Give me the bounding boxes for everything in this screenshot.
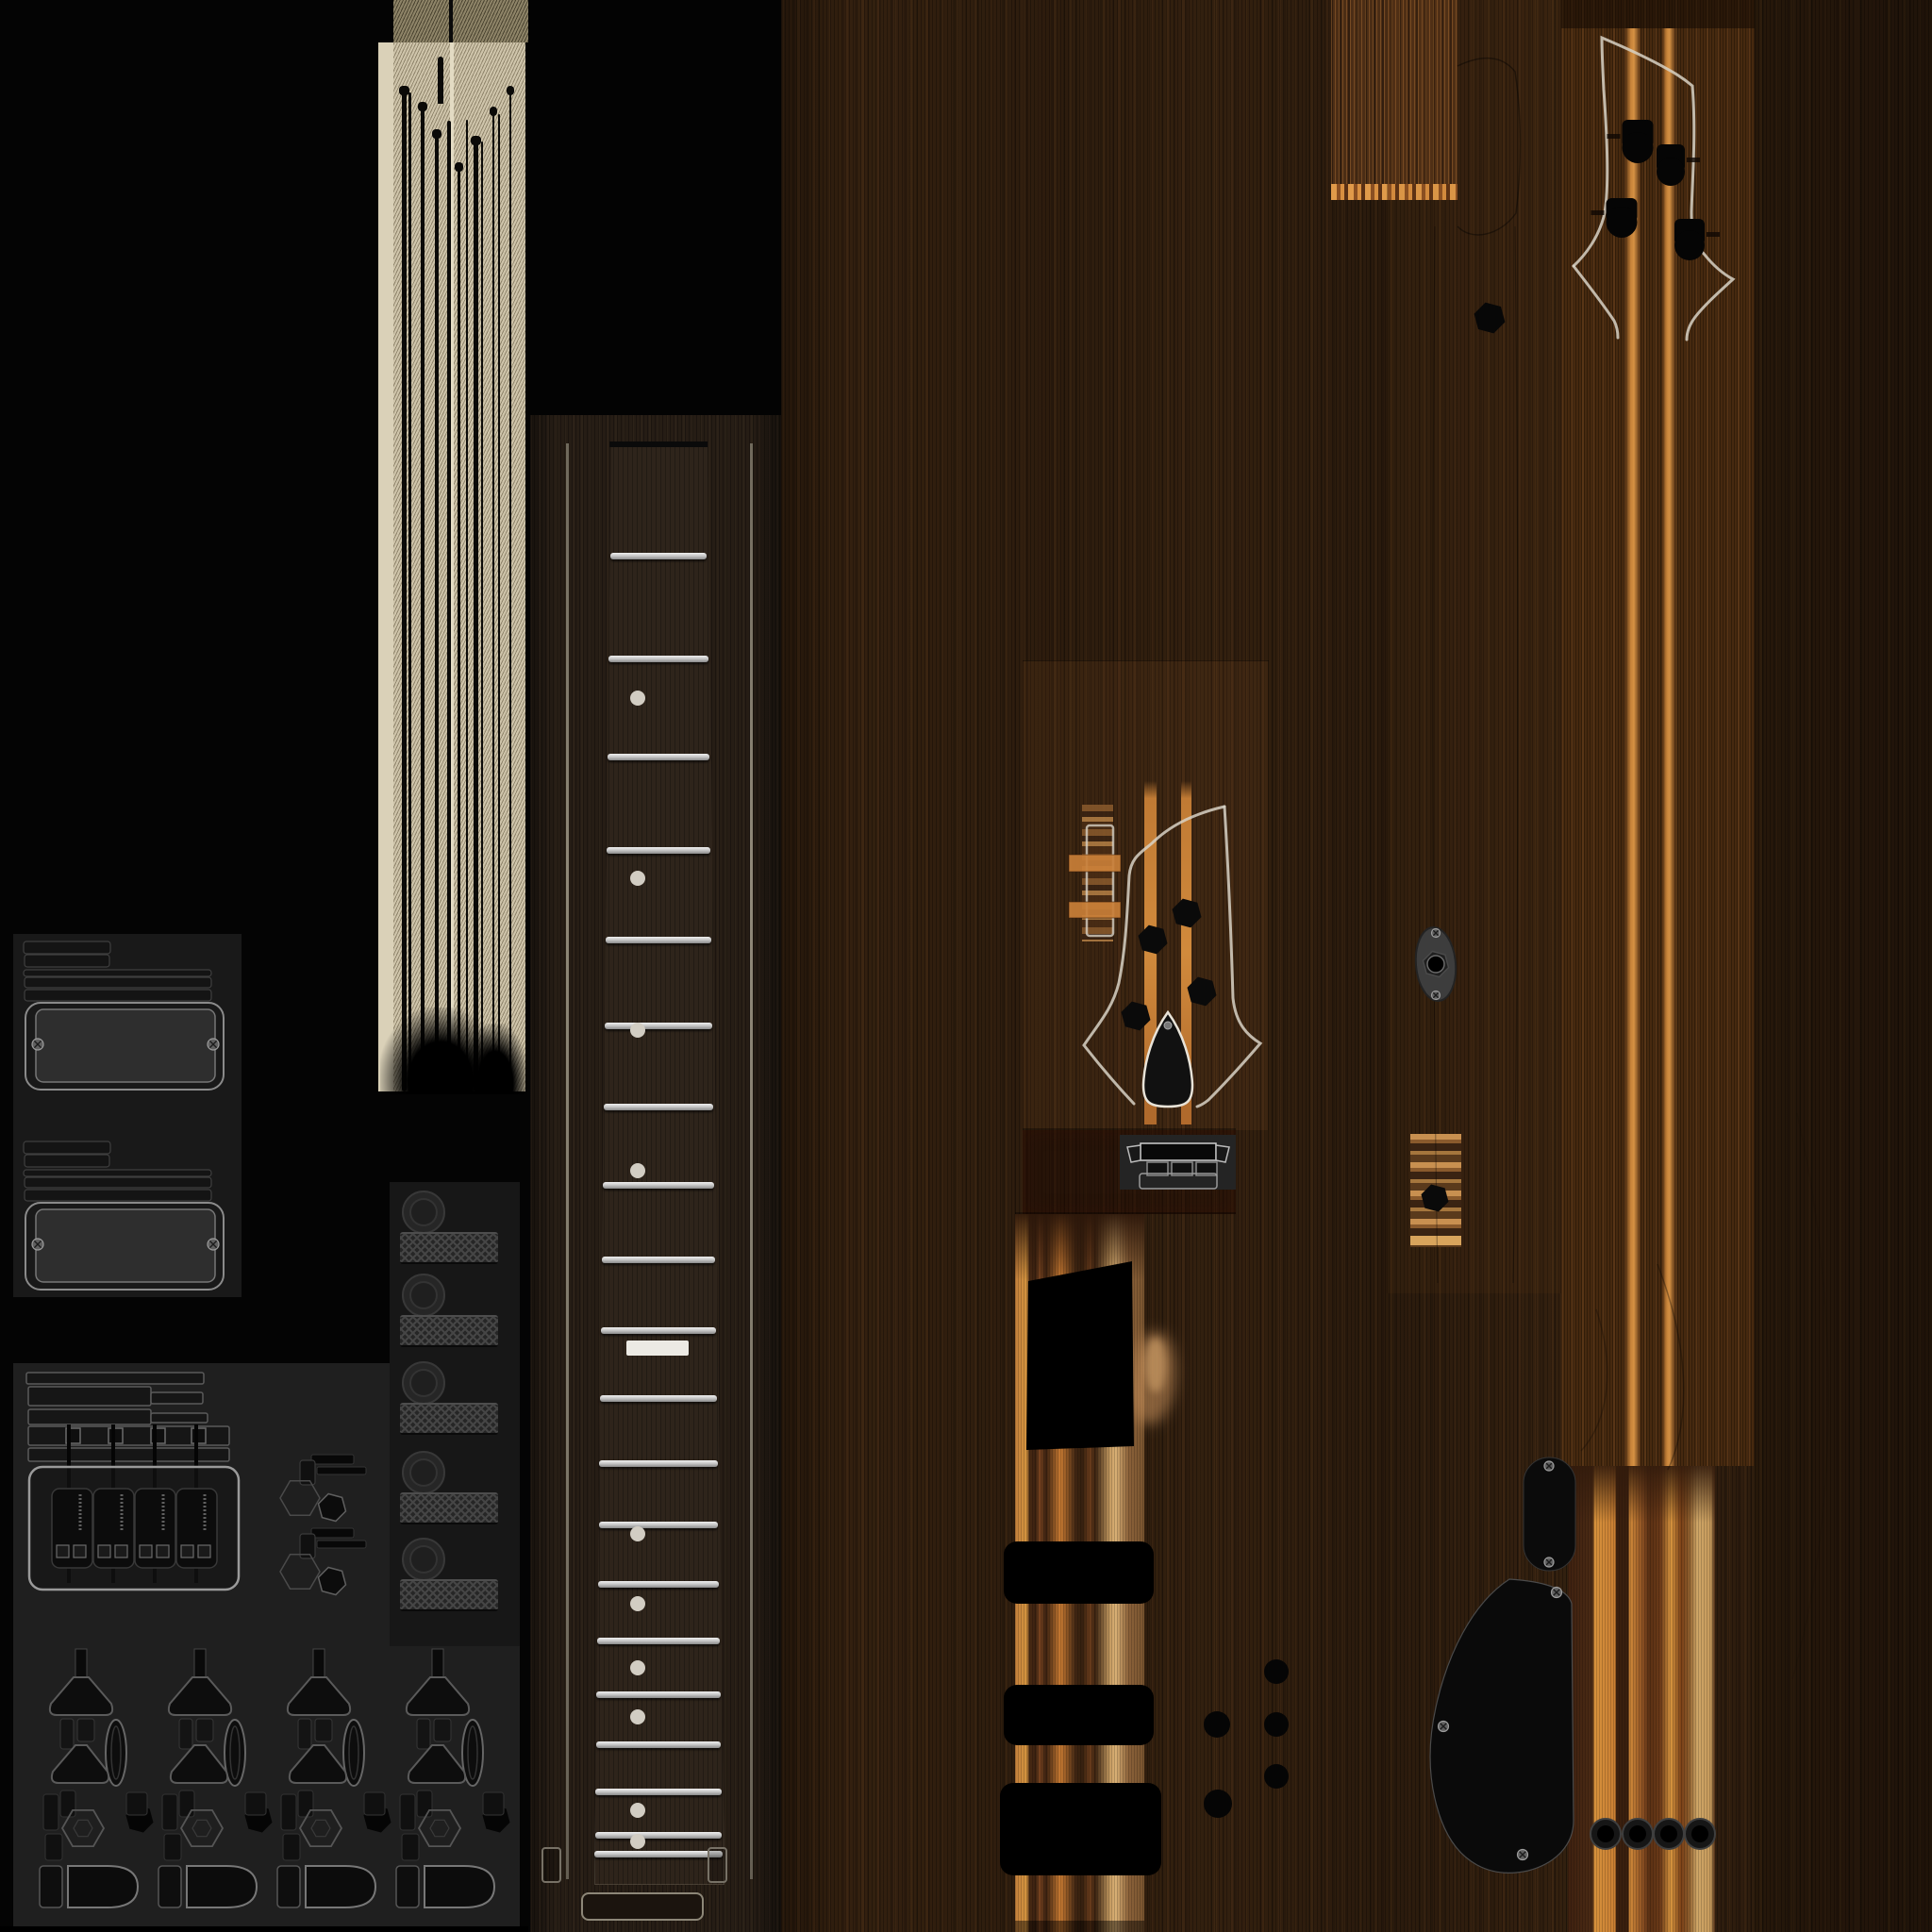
pickup-cover-0 <box>36 1009 215 1082</box>
tuner-0-housing-rect <box>40 1866 62 1907</box>
saddle-screw-b-2 <box>157 1545 169 1557</box>
string-retainer-bar-0 <box>1069 855 1121 872</box>
pickup-bar-0-3 <box>25 977 211 988</box>
jack-hole <box>1427 956 1444 973</box>
pickup-bar-1-4 <box>25 1190 211 1201</box>
tuner-0-post-a <box>60 1719 74 1749</box>
pickup-bar-0-1 <box>25 955 109 967</box>
bottom-black-strip <box>0 1926 528 1932</box>
string-ferrule-hole-3 <box>1691 1825 1708 1842</box>
string-ferrule-hole-2 <box>1660 1825 1677 1842</box>
tuner-2-housing-d <box>306 1866 375 1907</box>
tuner-0-gear-rect-d <box>126 1792 147 1815</box>
bridge-bar-3 <box>28 1409 151 1424</box>
tuner-1-stem <box>194 1649 206 1677</box>
tuner-0-stem <box>75 1649 87 1677</box>
tuner-1-gear-rect-c <box>164 1834 181 1860</box>
string-post-hex-2 <box>1188 977 1217 1007</box>
tuner-2-gear-rect-b <box>298 1790 313 1817</box>
tuner-0-gear-rect-c <box>45 1834 62 1860</box>
tuner-2-post-b <box>315 1719 332 1741</box>
tuner-2-gear-rect-d <box>364 1792 385 1815</box>
tuner-hole-round-1 <box>1657 158 1685 186</box>
wire-hole-2 <box>1264 1712 1289 1737</box>
tuner-3-button-lower <box>408 1745 465 1783</box>
cluster-bar-a-0 <box>311 1455 354 1464</box>
tuner-hole-round-0 <box>1623 132 1654 163</box>
tuner-3-post-a <box>417 1719 430 1749</box>
pickup-bar-0-4 <box>25 990 211 1001</box>
body-edge-curve-2 <box>1792 1113 1828 1679</box>
bridge-bar-1 <box>28 1387 151 1406</box>
tuner-3-housing-d <box>425 1866 494 1907</box>
tuner-3-gear-rect-b <box>417 1790 432 1817</box>
tuner-0-button-front <box>50 1677 112 1715</box>
pickup-bar-1-2 <box>24 1170 211 1176</box>
bridge-bar-0 <box>26 1373 204 1384</box>
body-edge-curve-1 <box>1581 1309 1607 1451</box>
tuner-2-hex-nut-inner <box>311 1820 330 1836</box>
tuner-1-gear-rect-d <box>245 1792 266 1815</box>
neck-taper-line-1 <box>1513 226 1518 1283</box>
headstock-back-outline-1 <box>1574 266 1618 338</box>
headstock-front-outline-1 <box>1197 807 1260 1107</box>
texture-atlas-canvas <box>0 0 1932 1932</box>
tuner-3-gear-rect-d <box>483 1792 504 1815</box>
bridge-bar-2 <box>151 1392 203 1404</box>
tuner-3-stem <box>432 1649 443 1677</box>
tuner-2-housing-rect <box>277 1866 300 1907</box>
saddle-screw-b-3 <box>198 1545 210 1557</box>
string-ferrule-hole-1 <box>1629 1825 1646 1842</box>
body-edge-curve-0 <box>1657 1264 1684 1470</box>
neck-taper-line-0 <box>1433 226 1438 1283</box>
tuner-0-gear-rect-a <box>43 1794 58 1830</box>
headstock-back-outline-0 <box>1574 38 1733 340</box>
tuner-1-button-lower <box>171 1745 227 1783</box>
nut-block-outline <box>1087 825 1113 936</box>
saddle-screw-a-1 <box>98 1545 110 1557</box>
cluster-hex-nut-1 <box>319 1568 346 1595</box>
pickup-cover-1 <box>36 1209 215 1282</box>
tuner-3-housing-rect <box>396 1866 419 1907</box>
tuner-3-button-front <box>407 1677 469 1715</box>
pickup-route-1 <box>1004 1685 1154 1745</box>
wire-hole-1 <box>1204 1711 1230 1738</box>
cluster-bar-b-1 <box>317 1541 366 1548</box>
pickup-route-0 <box>1004 1541 1154 1604</box>
saddle-screw-a-0 <box>57 1545 69 1557</box>
tuner-1-housing-rect <box>158 1866 181 1907</box>
tuner-2-post-a <box>298 1719 311 1749</box>
saddle-screw-b-0 <box>74 1545 86 1557</box>
tuner-2-button-lower <box>290 1745 346 1783</box>
tuner-hole-shadow-0 <box>1607 134 1621 139</box>
pickup-bar-1-1 <box>25 1155 109 1167</box>
tuner-hole-round-3 <box>1674 230 1705 260</box>
tuner-2-button-front <box>288 1677 350 1715</box>
tuner-hole-shadow-2 <box>1591 210 1605 215</box>
wire-hole-3 <box>1264 1764 1289 1789</box>
tuner-0-post-b <box>77 1719 94 1741</box>
tuner-0-gear-rect-b <box>60 1790 75 1817</box>
tuner-1-button-front <box>169 1677 231 1715</box>
vector-overlay <box>0 0 1932 1932</box>
cluster-bar-b-0 <box>317 1467 366 1474</box>
cluster-hex-outline-1 <box>280 1555 320 1589</box>
cluster-bar-a-1 <box>311 1528 354 1538</box>
tuner-0-button-lower <box>52 1745 108 1783</box>
tuner-hole-round-2 <box>1607 207 1638 238</box>
neck-bolt-hex <box>1474 303 1506 334</box>
tuner-3-gear-rect-c <box>402 1834 419 1860</box>
tuner-2-stem <box>313 1649 325 1677</box>
tuner-1-post-a <box>179 1719 192 1749</box>
saddle-screw-a-3 <box>181 1545 193 1557</box>
tuner-3-post-b <box>434 1719 451 1741</box>
truss-cover-screw <box>1164 1022 1172 1029</box>
pickup-bar-1-3 <box>25 1177 211 1188</box>
tuner-0-housing-d <box>68 1866 138 1907</box>
nut-graphic-bar <box>1141 1143 1216 1160</box>
tuner-1-hex-nut-inner <box>192 1820 211 1836</box>
pickup-bar-1-0 <box>24 1141 110 1154</box>
tuner-hole-shadow-3 <box>1707 232 1720 237</box>
bridge-bar-4 <box>151 1413 208 1423</box>
tuner-1-gear-rect-a <box>162 1794 177 1830</box>
tuner-2-gear-rect-c <box>283 1834 300 1860</box>
tuner-1-post-b <box>196 1719 213 1741</box>
battery-cover <box>1524 1457 1575 1571</box>
tuner-3-gear-rect-a <box>400 1794 415 1830</box>
control-cavity-cover <box>1430 1579 1574 1873</box>
body-wedge-shape <box>1026 1261 1134 1450</box>
bridge-notch-3 <box>192 1428 206 1443</box>
cluster-hex-nut-0 <box>319 1494 346 1522</box>
tuner-1-housing-d <box>187 1866 257 1907</box>
faint-headstock-silhouette <box>1457 58 1520 235</box>
string-ferrule-hole-0 <box>1597 1825 1614 1842</box>
tuner-hole-shadow-1 <box>1687 158 1700 162</box>
tuner-0-hex-nut-inner <box>74 1820 92 1836</box>
pickup-bar-0-0 <box>24 941 110 954</box>
string-post-hex-0 <box>1173 899 1202 928</box>
string-post-hex-3 <box>1122 1002 1151 1031</box>
cluster-hex-outline-0 <box>280 1481 320 1515</box>
pickup-bar-0-2 <box>24 970 211 976</box>
pickup-route-2 <box>1000 1783 1161 1875</box>
string-post-hex-1 <box>1139 925 1168 955</box>
heel-bolt-hex <box>1422 1185 1449 1212</box>
tuner-3-hex-nut-inner <box>430 1820 449 1836</box>
string-retainer-bar-1 <box>1069 902 1121 918</box>
saddle-screw-b-1 <box>115 1545 127 1557</box>
wire-hole-4 <box>1204 1790 1232 1818</box>
bridge-bar-6 <box>28 1448 229 1461</box>
bridge-notch-1 <box>108 1428 123 1443</box>
wire-hole-0 <box>1264 1659 1289 1684</box>
saddle-screw-a-2 <box>140 1545 152 1557</box>
tuner-1-gear-rect-b <box>179 1790 194 1817</box>
tuner-2-gear-rect-a <box>281 1794 296 1830</box>
